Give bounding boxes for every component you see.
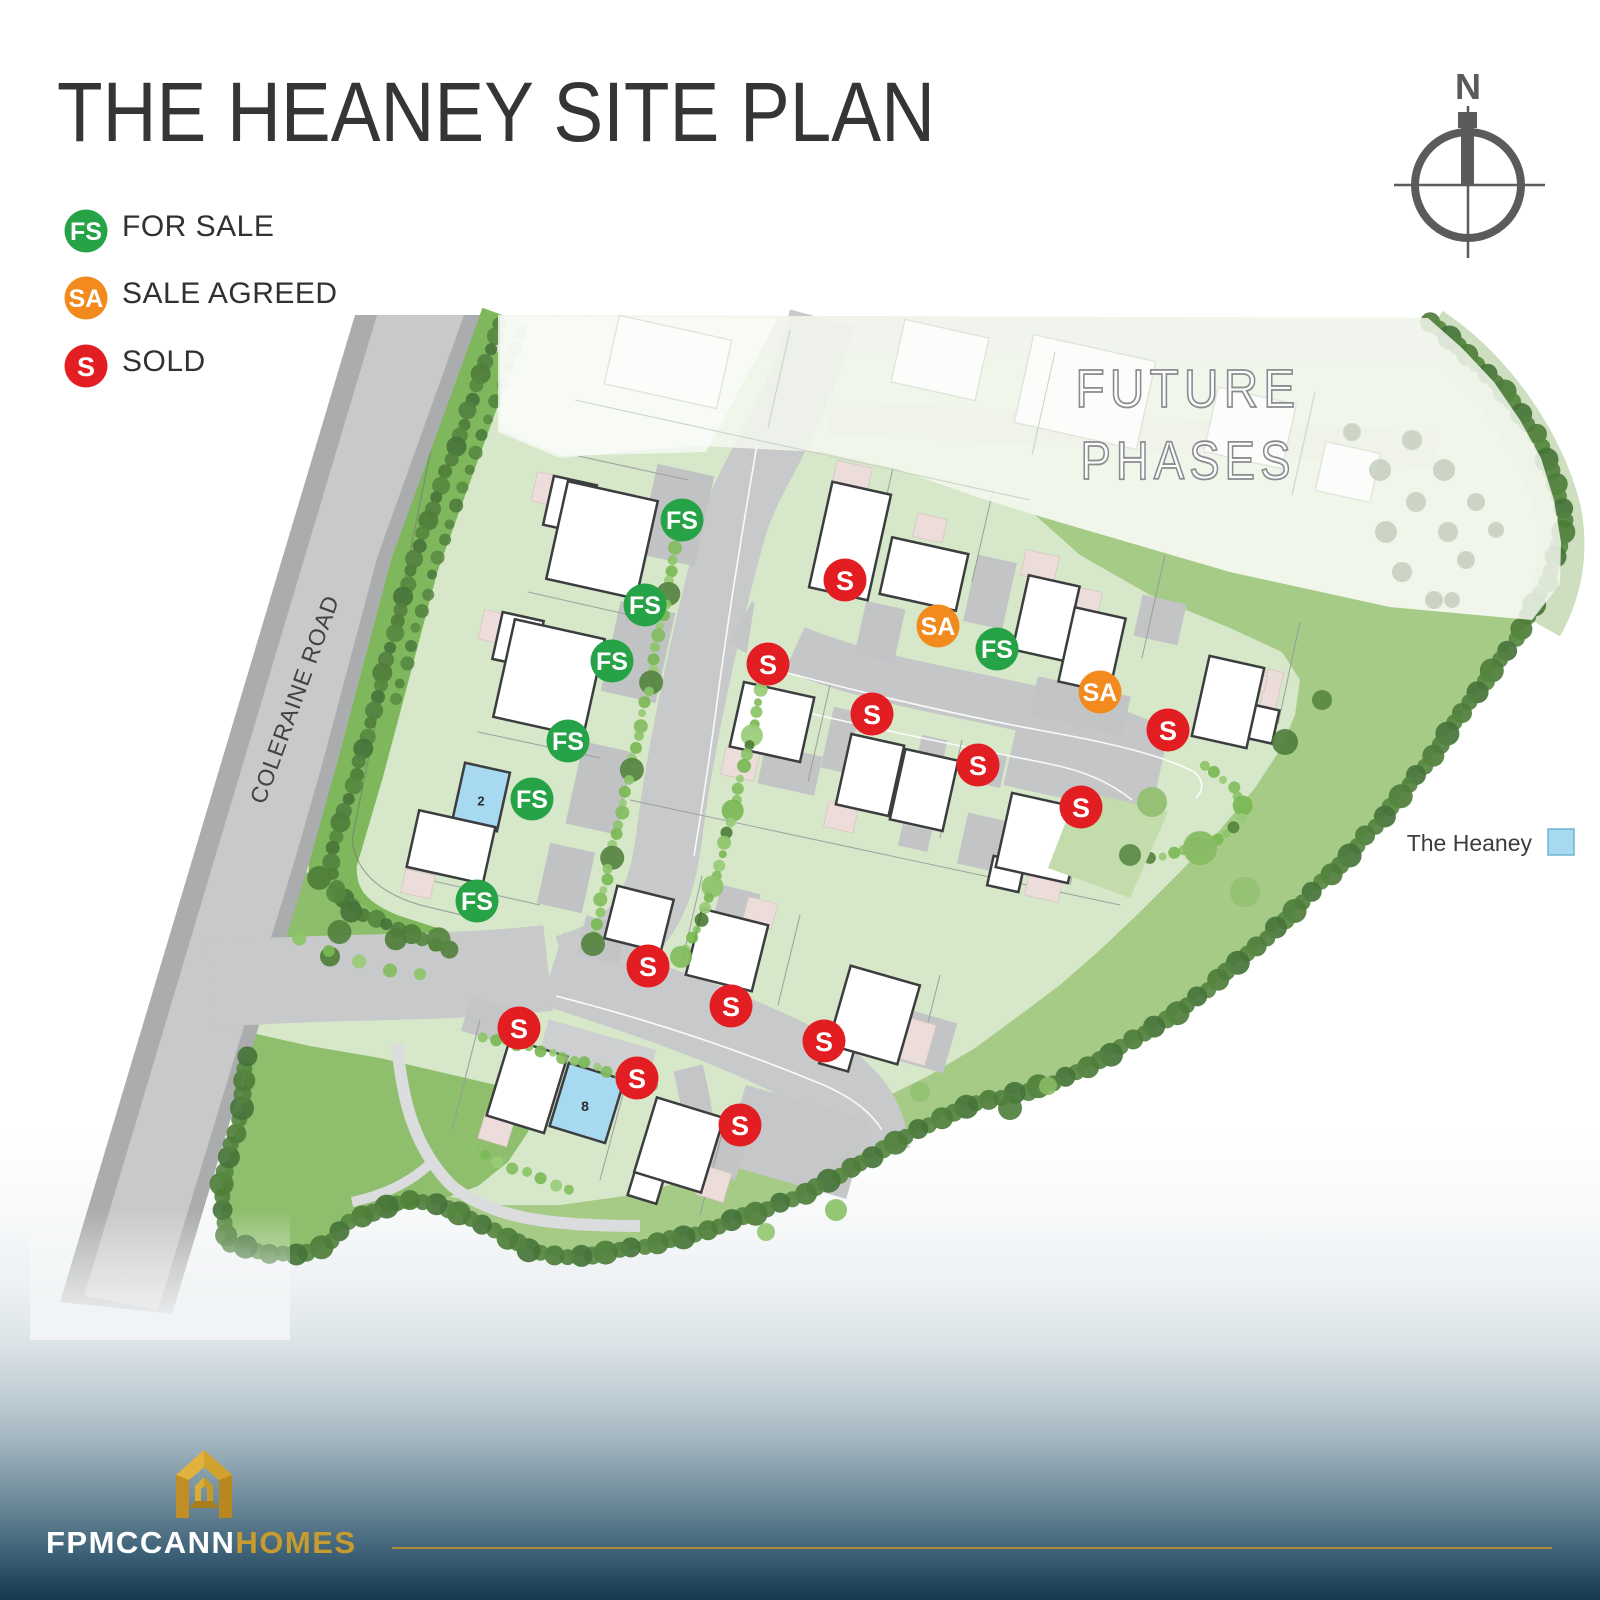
svg-text:N: N <box>1455 66 1481 107</box>
svg-text:S: S <box>639 952 657 982</box>
svg-text:S: S <box>77 352 95 382</box>
svg-text:S: S <box>722 992 740 1022</box>
svg-text:S: S <box>969 751 987 781</box>
svg-text:FS: FS <box>596 648 628 676</box>
svg-text:S: S <box>836 566 854 596</box>
svg-text:FS: FS <box>666 507 698 535</box>
svg-text:FS: FS <box>461 888 493 916</box>
svg-text:S: S <box>1072 793 1090 823</box>
svg-text:S: S <box>1159 716 1177 746</box>
svg-text:S: S <box>510 1014 528 1044</box>
svg-text:SALE AGREED: SALE AGREED <box>122 277 338 310</box>
svg-text:THE HEANEY SITE PLAN: THE HEANEY SITE PLAN <box>57 65 935 159</box>
svg-text:FS: FS <box>552 728 584 756</box>
svg-text:FS: FS <box>629 592 661 620</box>
svg-text:S: S <box>731 1111 749 1141</box>
svg-text:S: S <box>863 700 881 730</box>
svg-text:PHASES: PHASES <box>1081 431 1296 491</box>
svg-text:S: S <box>815 1027 833 1057</box>
svg-text:FOR SALE: FOR SALE <box>122 210 274 243</box>
svg-text:SA: SA <box>69 285 104 313</box>
svg-text:S: S <box>628 1064 646 1094</box>
svg-text:FS: FS <box>70 218 102 246</box>
svg-text:SOLD: SOLD <box>122 345 206 378</box>
svg-text:8: 8 <box>581 1098 589 1114</box>
svg-text:FUTURE: FUTURE <box>1076 359 1301 419</box>
svg-text:S: S <box>759 650 777 680</box>
svg-text:FS: FS <box>516 786 548 814</box>
svg-text:FPMCCANNHOMES: FPMCCANNHOMES <box>46 1525 357 1560</box>
svg-text:FS: FS <box>981 636 1013 664</box>
svg-text:The Heaney: The Heaney <box>1407 830 1533 856</box>
svg-text:SA: SA <box>921 613 956 641</box>
svg-text:2: 2 <box>477 794 484 809</box>
svg-text:SA: SA <box>1083 679 1118 707</box>
